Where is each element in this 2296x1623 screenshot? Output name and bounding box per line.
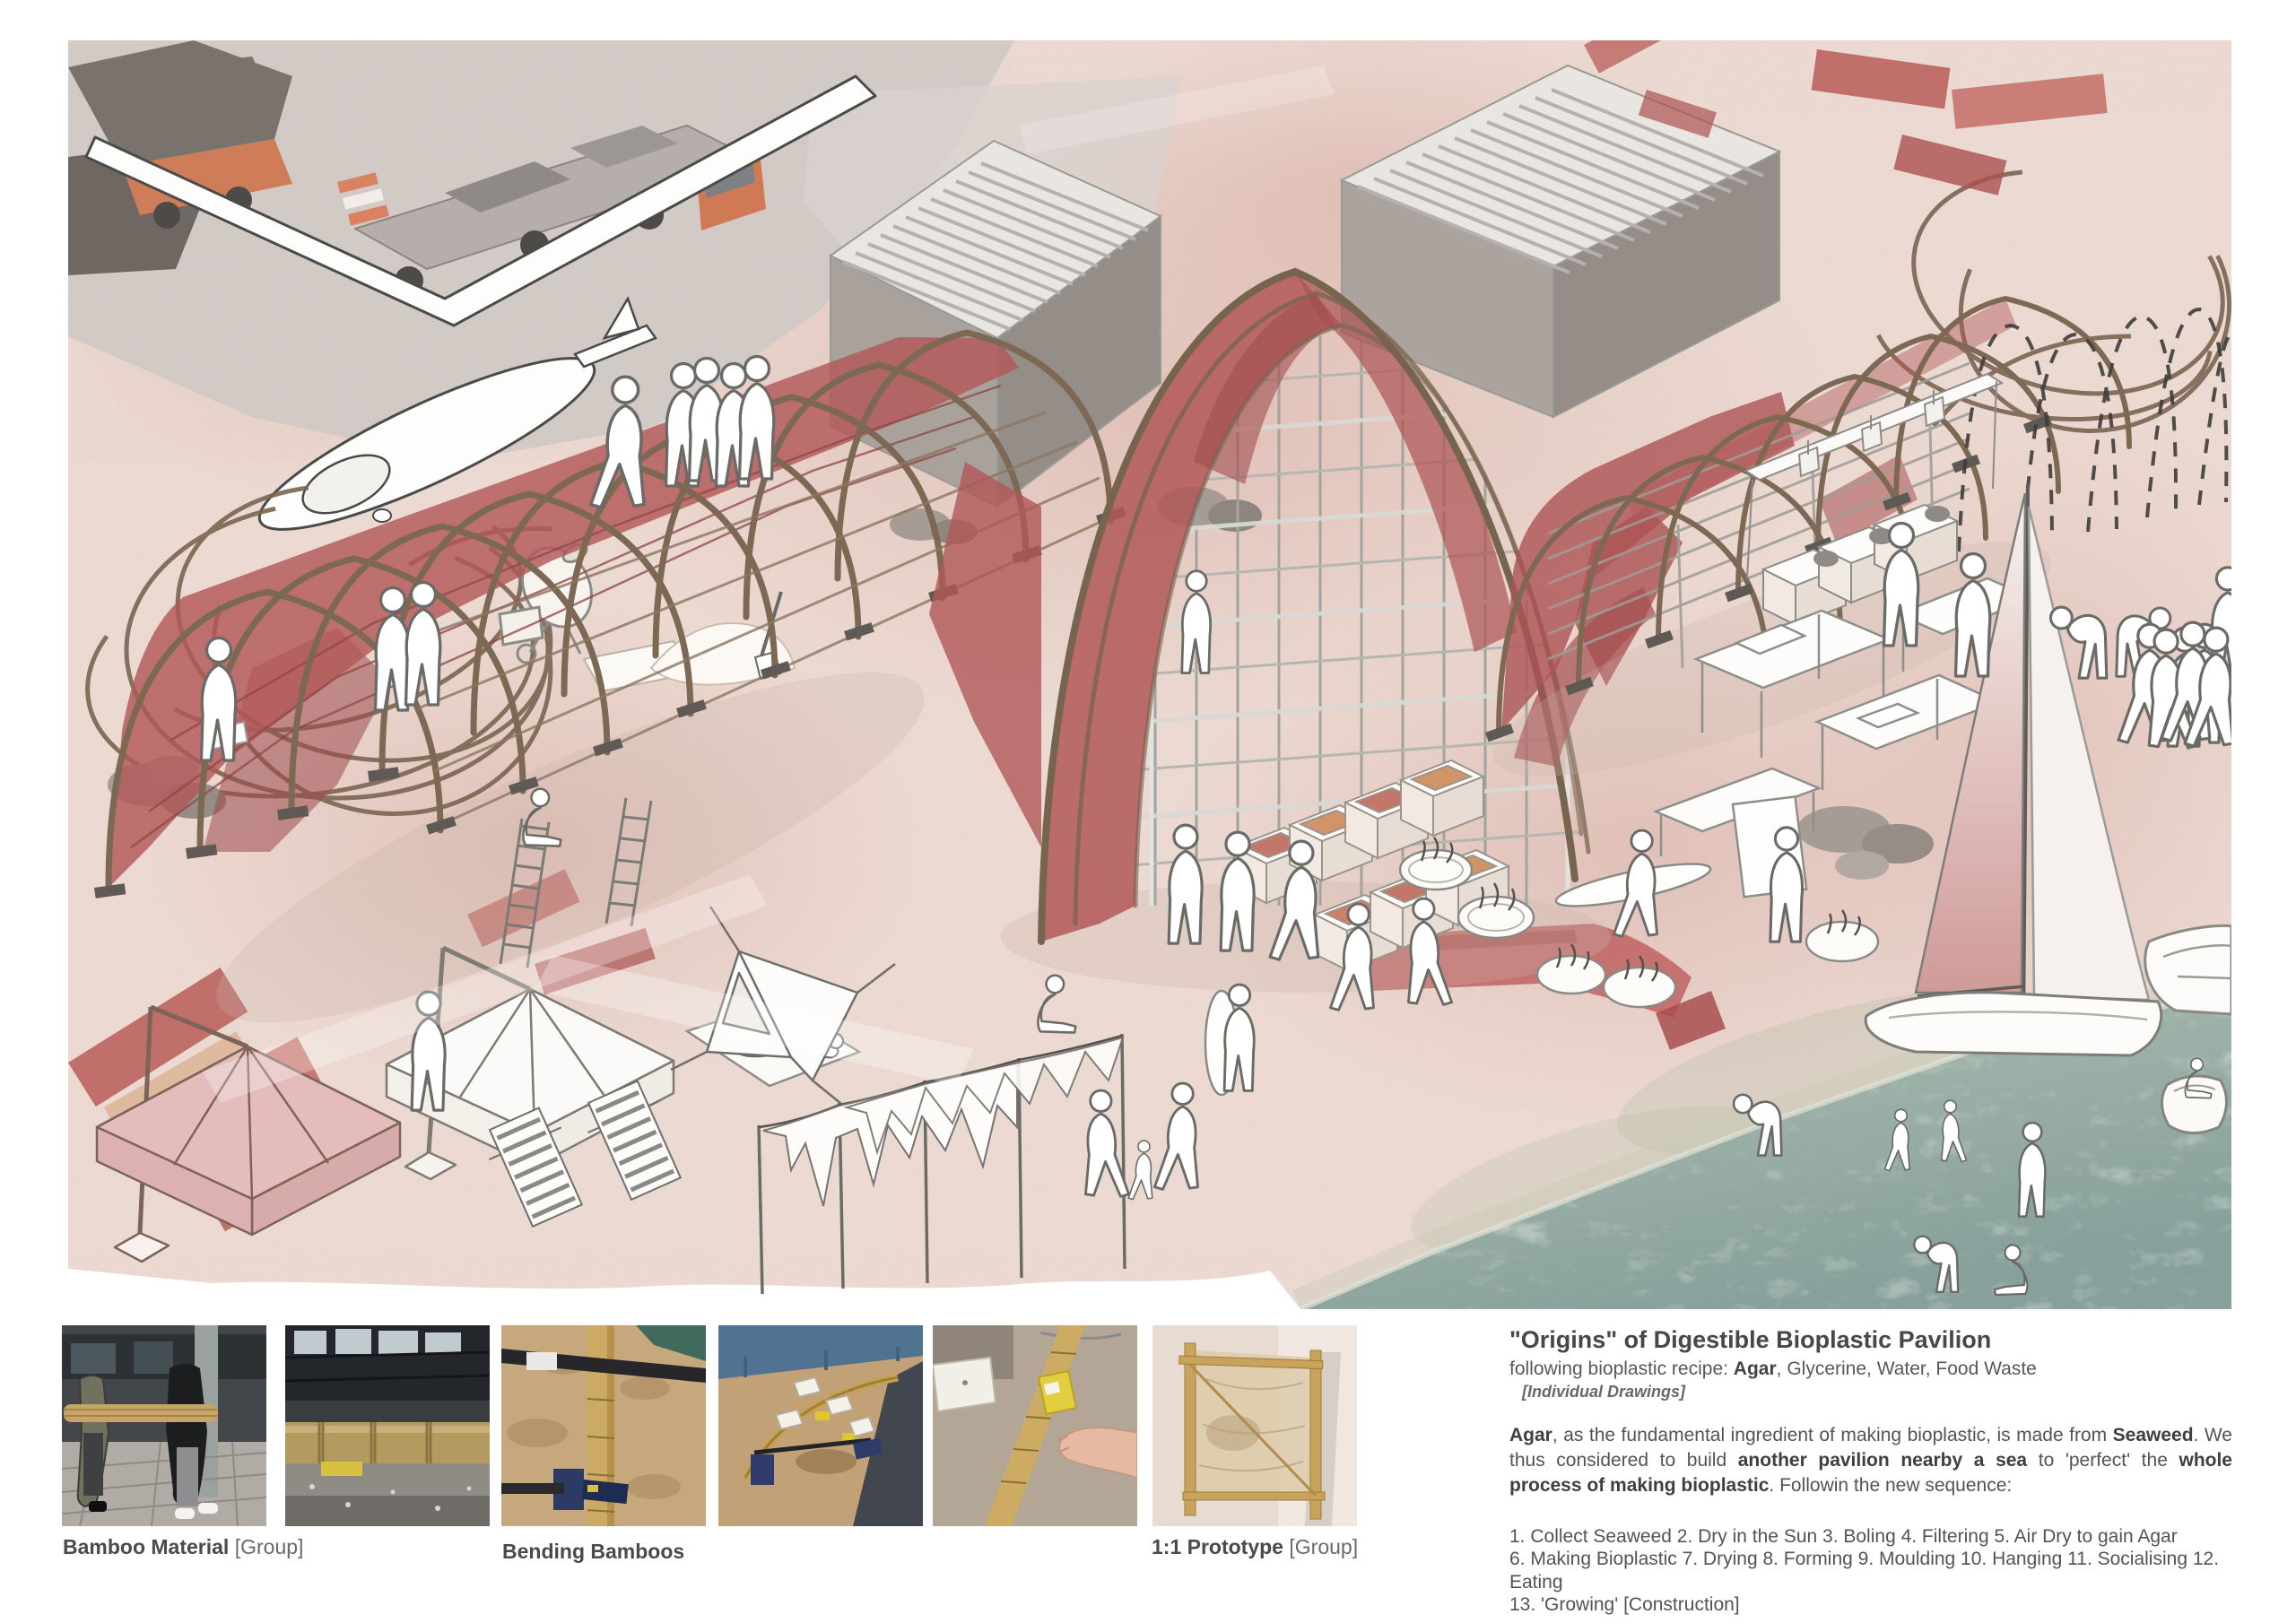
sequence-line: 6. Making Bioplastic 7. Drying 8. Formin… (1509, 1548, 2232, 1593)
description-paragraph: Agar, as the fundamental ingredient of m… (1509, 1423, 2232, 1498)
photo-bending-workbench (718, 1325, 923, 1526)
photo-bamboo-material (62, 1325, 266, 1526)
project-description: "Origins" of Digestible Bioplastic Pavil… (1509, 1326, 2232, 1616)
pavilion-axonometric-illustration (68, 40, 2231, 1309)
photo-bamboo-clamped (501, 1325, 706, 1526)
recipe-line: following bioplastic recipe: Agar, Glyce… (1509, 1358, 2232, 1380)
photo-bamboo-workshop (285, 1325, 490, 1526)
process-sequence: 1. Collect Seaweed 2. Dry in the Sun 3. … (1509, 1525, 2232, 1617)
dinghy (2161, 1076, 2226, 1133)
page-title: "Origins" of Digestible Bioplastic Pavil… (1509, 1326, 2232, 1354)
photo-hand-marking-bamboo (933, 1325, 1137, 1526)
drawings-note: [Individual Drawings] (1522, 1383, 2232, 1402)
photo-prototype-frame (1152, 1325, 1357, 1526)
caption-bamboo-material: Bamboo Material [Group] (63, 1535, 303, 1559)
sequence-line: 13. 'Growing' [Construction] (1509, 1593, 2232, 1616)
sequence-line: 1. Collect Seaweed 2. Dry in the Sun 3. … (1509, 1525, 2232, 1548)
caption-bending-bamboos: Bending Bamboos (502, 1540, 684, 1564)
caption-prototype: 1:1 Prototype [Group] (1152, 1535, 1358, 1559)
